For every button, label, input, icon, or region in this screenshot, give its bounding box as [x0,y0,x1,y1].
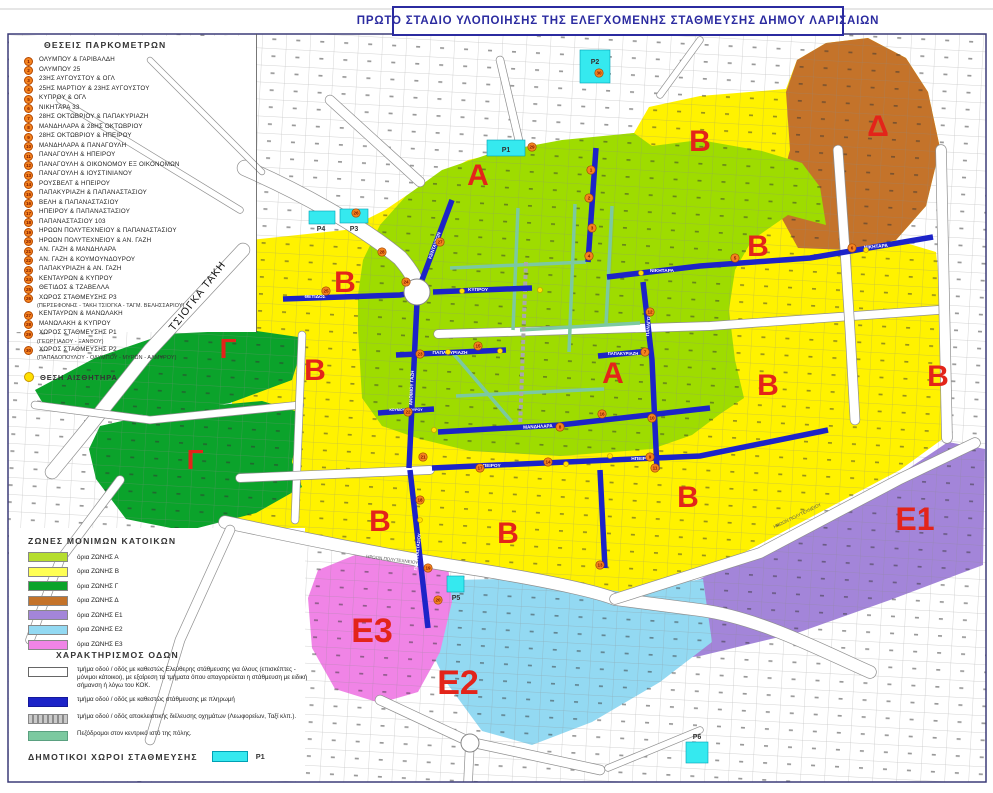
legend-meter-item: 30 ΧΩΡΟΣ ΣΤΑΘΜΕΥΣΗΣ Ρ2 [24,346,254,356]
parking-meter-number: 5 [734,256,737,261]
parking-meter-number: 2 [588,196,591,201]
legend-meter-item: 12 ΠΑΝΑΓΟΥΛΗ & ΟΙΚΟΝΟΜΟΥ ΕΞ ΟΙΚΟΝΟΜΩΝ [24,161,254,171]
parking-area-label: P1 [502,147,511,154]
meter-item-label: ΚΕΝΤΑΥΡΩΝ & ΚΥΠΡΟΥ [39,275,113,283]
map-sheet: P1P2P3P4P5P6ΘΕΤΙΔΟΣΚΥΠΡΟΥΚΕΝΤΑΥΡΩΝΑΝΘΙΜΟ… [0,0,993,793]
map-title-box: ΠΡΩΤΟ ΣΤΑΔΙΟ ΥΛΟΠΟΙΗΣΗΣ ΤΗΣ ΕΛΕΓΧΟΜΕΝΗΣ … [392,6,844,36]
meter-number-icon: 28 [24,320,33,329]
parking-meter-number: 18 [417,498,423,503]
legend-meter-item: 16 ΒΕΛΗ & ΠΑΠΑΝΑΣΤΑΣΙΟΥ [24,199,254,209]
meter-number-icon: 7 [24,114,33,123]
street-name-label: ΘΕΤΙΔΟΣ [304,294,325,300]
legend-meter-item: 26 ΧΩΡΟΣ ΣΤΑΘΜΕΥΣΗΣ Ρ3 [24,294,254,304]
meter-item-label: ΜΑΝΔΗΛΑΡΑ & ΠΑΝΑΓΟΥΛΗ [39,142,126,150]
road-legend-item: τμήμα οδού / οδός με καθεστώς Ελεύθερης … [28,666,328,690]
sensor-marker [432,428,437,433]
zone-legend-label: όρια ΖΩΝΗΣ Ε2 [77,626,123,633]
meter-number-icon: 11 [24,152,33,161]
zone-legend-label: όρια ΖΩΝΗΣ Δ [77,597,119,604]
parking-meter-number: 27 [437,240,443,245]
meter-number-icon: 18 [24,218,33,227]
legend-meter-item: 28 ΜΑΝΩΛΑΚΗ & ΚΥΠΡΟΥ [24,320,254,330]
parking-meter-number: 25 [323,289,329,294]
meter-item-label: ΧΩΡΟΣ ΣΤΑΘΜΕΥΣΗΣ Ρ1 [39,329,117,337]
legend-meter-item: 5 ΚΥΠΡΟΥ & ΟΓΛ [24,94,254,104]
legend-meter-item: 7 28ΗΣ ΟΚΤΩΒΡΙΟΥ & ΠΑΠΑΚΥΡΙΑΖΗ [24,113,254,123]
meter-item-label: ΗΡΩΩΝ ΠΟΛΥΤΕΧΝΕΙΟΥ & ΑΝ. ΓΑΖΗ [39,237,151,245]
zone-legend-item: όρια ΖΩΝΗΣ Ε3 [28,640,278,650]
meter-number-icon: 10 [24,142,33,151]
meter-item-label: ΧΩΡΟΣ ΣΤΑΘΜΕΥΣΗΣ Ρ3 [39,294,117,302]
meter-item-label: ΟΛΥΜΠΟΥ & ΓΑΡΙΒΑΛΔΗ [39,56,115,64]
legend-meter-item: 21 ΑΝ. ΓΑΖΗ & ΜΑΝΔΗΛΑΡΑ [24,246,254,256]
parking-area-P5 [447,576,464,592]
parking-meter-number: 19 [425,566,431,571]
sensor-marker [608,454,613,459]
meter-item-sublabel: (ΠΑΠΑΔΟΠΟΥΛΟΥ - ΟΛΥΜΠΟΥ - ΜΥΡΩΝ - ΑΛΜΥΡΟ… [37,355,254,362]
zone-color-swatch [28,625,68,635]
parking-meter-number: 20 [435,598,441,603]
zone-legend-item: όρια ΖΩΝΗΣ Γ [28,581,278,591]
parking-meters-legend-list: 1 ΟΛΥΜΠΟΥ & ΓΑΡΙΒΑΛΔΗ 2 ΟΛΥΜΠΟΥ 25 3 [16,56,254,362]
legend-meter-item: 3 23ΗΣ ΑΥΓΟΥΣΤΟΥ & ΟΓΛ [24,75,254,85]
zone-letter-label: Α [602,357,624,390]
zone-letter-label: Β [757,369,779,402]
sensor-marker [418,518,423,523]
meter-item-label: ΠΑΝΑΓΟΥΛΗ & ΗΠΕΙΡΟΥ [39,151,116,159]
meter-item-label: ΑΝ. ΓΑΖΗ & ΚΟΥΜΟΥΝΔΟΥΡΟΥ [39,256,135,264]
zone-legend-label: όρια ΖΩΝΗΣ Ε1 [77,612,123,619]
sensor-marker [538,288,543,293]
zone-letter-label: Β [677,481,699,514]
parking-meter-number: 21 [420,455,426,460]
sensor-legend-row: ΘΕΣΗ ΑΙΣΘΗΤΗΡΑ [24,372,254,382]
meter-item-label: ΜΑΝΩΛΑΚΗ & ΚΥΠΡΟΥ [39,320,111,328]
meter-number-icon: 23 [24,266,33,275]
parking-area-P2 [580,50,610,83]
zones-legend: ΖΩΝΕΣ ΜΟΝΙΜΩΝ ΚΑΤΟΙΚΩΝ όρια ΖΩΝΗΣ Α όρια… [28,536,278,654]
meter-number-icon: 22 [24,256,33,265]
parking-meters-legend-header: ΘΕΣΕΙΣ ΠΑΡΚΟΜΕΤΡΩΝ [44,40,254,50]
zone-legend-item: όρια ΖΩΝΗΣ Β [28,567,278,577]
legend-meter-item: 19 ΗΡΩΩΝ ΠΟΛΥΤΕΧΝΕΙΟΥ & ΠΑΠΑΝΑΣΤΑΣΙΟΥ [24,227,254,237]
zone-color-swatch [28,552,68,562]
legend-meter-item: 8 ΜΑΝΔΗΛΑΡΑ & 28ΗΣ ΟΚΤΩΒΡΙΟΥ [24,123,254,133]
meter-number-icon: 27 [24,311,33,320]
parking-meter-number: 28 [379,250,385,255]
meter-number-icon: 17 [24,209,33,218]
zone-color-swatch [28,610,68,620]
parking-meter-number: 7 [644,350,647,355]
road-type-swatch [28,667,68,677]
road-legend-label: τμήμα οδού / οδός αποκλειστικής διέλευση… [77,713,296,721]
meter-number-icon: 6 [24,104,33,113]
zone-letter-label: Β [689,125,711,158]
legend-meter-item: 29 ΧΩΡΟΣ ΣΤΑΘΜΕΥΣΗΣ Ρ1 [24,329,254,339]
parking-meter-number: 10 [649,416,655,421]
meter-item-label: 28ΗΣ ΟΚΤΩΒΡΙΟΥ & ΗΠΕΙΡΟΥ [39,132,132,140]
legend-meter-item: 20 ΗΡΩΩΝ ΠΟΛΥΤΕΧΝΕΙΟΥ & ΑΝ. ΓΑΖΗ [24,237,254,247]
road-types-legend-list: τμήμα οδού / οδός με καθεστώς Ελεύθερης … [28,666,328,741]
parking-meter-number: 17 [477,466,483,471]
meter-item-sublabel: (ΓΕΩΡΓΙΑΔΟΥ - ΞΑΝΘΟΥ) [37,339,254,346]
road-legend-item: τμήμα οδού / οδός αποκλειστικής διέλευση… [28,713,328,724]
roundabout [461,734,479,752]
meter-item-label: ΧΩΡΟΣ ΣΤΑΘΜΕΥΣΗΣ Ρ2 [39,346,117,354]
sensor-legend-label: ΘΕΣΗ ΑΙΣΘΗΤΗΡΑ [40,373,118,382]
zone-letter-label: Δ [867,110,889,143]
zone-letter-label: Β [497,517,519,550]
zones-legend-list: όρια ΖΩΝΗΣ Α όρια ΖΩΝΗΣ Β όρια ΖΩΝΗΣ Γ ό… [28,552,278,650]
legend-meter-item: 9 28ΗΣ ΟΚΤΩΒΡΙΟΥ & ΗΠΕΙΡΟΥ [24,132,254,142]
meter-number-icon: 26 [24,294,33,303]
zone-legend-label: όρια ΖΩΝΗΣ Γ [77,583,118,590]
road-types-legend-header: ΧΑΡΑΚΤΗΡΙΣΜΟΣ ΟΔΩΝ [56,650,328,660]
meter-item-label: ΚΕΝΤΑΥΡΩΝ & ΜΑΝΩΛΑΚΗ [39,310,123,318]
meter-item-label: ΡΟΥΣΒΕΛΤ & ΗΠΕΙΡΟΥ [39,180,110,188]
zone-letter-label: Ε3 [351,612,393,650]
meter-item-label: ΚΥΠΡΟΥ & ΟΓΛ [39,94,86,102]
zone-letter-label: Β [927,360,949,393]
meter-item-label: ΘΕΤΙΔΟΣ & ΤΖΑΒΕΛΛΑ [39,284,109,292]
map-title: ΠΡΩΤΟ ΣΤΑΔΙΟ ΥΛΟΠΟΙΗΣΗΣ ΤΗΣ ΕΛΕΓΧΟΜΕΝΗΣ … [357,15,879,27]
zone-letter-label: Γ [187,444,204,475]
parking-meter-number: 4 [588,254,591,259]
zone-color-swatch [28,581,68,591]
meter-number-icon: 5 [24,95,33,104]
street-name-label: ΠΑΠΑΚΥΡΙΑΖΗ [608,351,638,356]
sensor-marker [864,248,869,253]
parking-meter-number: 8 [559,425,562,430]
meter-number-icon: 9 [24,133,33,142]
legend-meter-item: 17 ΗΠΕΙΡΟΥ & ΠΑΠΑΝΑΣΤΑΣΙΟΥ [24,208,254,218]
road-type-swatch [28,731,68,741]
zone-letter-label: Β [334,266,356,299]
road-legend-label: τμήμα οδού / οδός με καθεστώς στάθμευσης… [77,696,235,704]
zone-letter-label: Ε1 [895,501,934,537]
zone-color-swatch [28,596,68,606]
parking-meters-legend: ΘΕΣΕΙΣ ΠΑΡΚΟΜΕΤΡΩΝ 1 ΟΛΥΜΠΟΥ & ΓΑΡΙΒΑΛΔΗ… [16,40,254,382]
sensor-marker [564,462,569,467]
parking-meter-number: 26 [353,211,359,216]
meter-number-icon: 14 [24,180,33,189]
meter-number-icon: 3 [24,76,33,85]
zone-legend-label: όρια ΖΩΝΗΣ Α [77,554,119,561]
road-legend-label: τμήμα οδού / οδός με καθεστώς Ελεύθερης … [77,666,312,690]
parking-meter-number: 9 [649,455,652,460]
road-legend-label: Πεζόδρομοι στον κεντρικό ιστό της πόλης. [77,730,192,738]
sensor-marker [460,289,465,294]
sensor-marker [498,349,503,354]
meter-item-label: ΜΑΝΔΗΛΑΡΑ & 28ΗΣ ΟΚΤΩΒΡΙΟΥ [39,123,143,131]
parking-meter-number: 24 [403,280,409,285]
zone-legend-label: όρια ΖΩΝΗΣ Β [77,568,119,575]
meter-number-icon: 16 [24,199,33,208]
zones-legend-header: ΖΩΝΕΣ ΜΟΝΙΜΩΝ ΚΑΤΟΙΚΩΝ [28,536,278,546]
sensor-marker [446,350,451,355]
zone-letter-label: Ε2 [437,664,479,702]
parking-area-P6 [686,742,708,763]
parking-meter-number: 16 [599,412,605,417]
parking-meter-number: 13 [597,563,603,568]
municipal-parking-legend: ΔΗΜΟΤΙΚΟΙ ΧΩΡΟΙ ΣΤΑΘΜΕΥΣΗΣ P1 [28,751,328,762]
legend-meter-item: 13 ΠΑΝΑΓΟΥΛΗ & ΙΟΥΣΤΙΝΙΑΝΟΥ [24,170,254,180]
meter-item-label: 25ΗΣ ΜΑΡΤΙΟΥ & 23ΗΣ ΑΥΓΟΥΣΤΟΥ [39,85,150,93]
road-types-legend: ΧΑΡΑΚΤΗΡΙΣΜΟΣ ΟΔΩΝ τμήμα οδού / οδός με … [28,650,328,762]
legend-meter-item: 10 ΜΑΝΔΗΛΑΡΑ & ΠΑΝΑΓΟΥΛΗ [24,142,254,152]
parking-meter-number: 30 [596,71,602,76]
legend-meter-item: 23 ΠΑΠΑΚΥΡΙΑΖΗ & ΑΝ. ΓΑΖΗ [24,265,254,275]
meter-number-icon: 1 [24,57,33,66]
parking-meter-number: 23 [417,352,423,357]
zone-color-swatch [28,640,68,650]
parking-area-label: P3 [350,226,359,233]
parking-meter-number: 14 [545,460,551,465]
zone-letter-label: Α [467,159,489,192]
meter-item-label: ΗΡΩΩΝ ΠΟΛΥΤΕΧΝΕΙΟΥ & ΠΑΠΑΝΑΣΤΑΣΙΟΥ [39,227,177,235]
municipal-parking-label: P1 [256,752,265,761]
road-legend-item: Πεζόδρομοι στον κεντρικό ιστό της πόλης. [28,730,328,741]
zone-legend-label: όρια ΖΩΝΗΣ Ε3 [77,641,123,648]
meter-item-label: ΗΠΕΙΡΟΥ & ΠΑΠΑΝΑΣΤΑΣΙΟΥ [39,208,130,216]
parking-area-label: P6 [693,734,702,741]
meter-item-sublabel: (ΠΕΡΣΕΦΟΝΗΣ - ΤΑΚΗ ΤΣΙΟΓΚΑ - ΤΑΓΜ. ΒΕΛΗΣ… [37,303,254,310]
parking-area-label: P4 [317,226,326,233]
meter-number-icon: 29 [24,330,33,339]
zone-color-swatch [28,567,68,577]
meter-number-icon: 8 [24,123,33,132]
meter-number-icon: 21 [24,247,33,256]
legend-meter-item: 18 ΠΑΠΑΝΑΣΤΑΣΙΟΥ 103 [24,218,254,228]
meter-item-label: ΠΑΠΑΚΥΡΙΑΖΗ & ΑΝ. ΓΑΖΗ [39,265,122,273]
meter-item-label: ΝΙΚΗΤΑΡΑ 33 [39,104,79,112]
meter-number-icon: 19 [24,228,33,237]
meter-number-icon: 25 [24,285,33,294]
zone-legend-item: όρια ΖΩΝΗΣ Ε2 [28,625,278,635]
sensor-dot-icon [24,372,34,382]
municipal-parking-header: ΔΗΜΟΤΙΚΟΙ ΧΩΡΟΙ ΣΤΑΘΜΕΥΣΗΣ [28,752,198,762]
road-type-swatch [28,697,68,707]
meter-number-icon: 12 [24,161,33,170]
parking-meter-number: 29 [529,145,535,150]
zone-letter-label: Β [369,505,391,538]
parking-meter-number: 3 [591,226,594,231]
parking-area-label: P5 [452,595,461,602]
legend-meter-item: 24 ΚΕΝΤΑΥΡΩΝ & ΚΥΠΡΟΥ [24,275,254,285]
legend-meter-item: 25 ΘΕΤΙΔΟΣ & ΤΖΑΒΕΛΛΑ [24,284,254,294]
meter-item-label: ΑΝ. ΓΑΖΗ & ΜΑΝΔΗΛΑΡΑ [39,246,116,254]
legend-meter-item: 4 25ΗΣ ΜΑΡΤΙΟΥ & 23ΗΣ ΑΥΓΟΥΣΤΟΥ [24,85,254,95]
legend-meter-item: 11 ΠΑΝΑΓΟΥΛΗ & ΗΠΕΙΡΟΥ [24,151,254,161]
zone-legend-item: όρια ΖΩΝΗΣ Ε1 [28,610,278,620]
legend-meter-item: 15 ΠΑΠΑΚΥΡΙΑΖΗ & ΠΑΠΑΝΑΣΤΑΣΙΟΥ [24,189,254,199]
meter-number-icon: 24 [24,275,33,284]
zone-legend-item: όρια ΖΩΝΗΣ Δ [28,596,278,606]
zone-letter-label: Β [747,230,769,263]
meter-item-label: ΟΛΥΜΠΟΥ 25 [39,66,80,74]
road-type-swatch [28,714,68,724]
meter-item-label: 23ΗΣ ΑΥΓΟΥΣΤΟΥ & ΟΓΛ [39,75,115,83]
legend-meter-item: 6 ΝΙΚΗΤΑΡΑ 33 [24,104,254,114]
legend-meter-item: 2 ΟΛΥΜΠΟΥ 25 [24,66,254,76]
legend-meter-item: 1 ΟΛΥΜΠΟΥ & ΓΑΡΙΒΑΛΔΗ [24,56,254,66]
parking-meter-number: 22 [405,410,411,415]
meter-item-label: 28ΗΣ ΟΚΤΩΒΡΙΟΥ & ΠΑΠΑΚΥΡΙΑΖΗ [39,113,149,121]
meter-item-label: ΠΑΠΑΝΑΣΤΑΣΙΟΥ 103 [39,218,106,226]
parking-meter-number: 15 [475,344,481,349]
meter-number-icon: 13 [24,171,33,180]
legend-meter-item: 22 ΑΝ. ΓΑΖΗ & ΚΟΥΜΟΥΝΔΟΥΡΟΥ [24,256,254,266]
parking-area-P4 [309,211,335,224]
parking-meter-number: 11 [653,466,658,471]
meter-item-label: ΠΑΠΑΚΥΡΙΑΖΗ & ΠΑΠΑΝΑΣΤΑΣΙΟΥ [39,189,147,197]
meter-number-icon: 15 [24,190,33,199]
parking-meter-number: 1 [590,168,593,173]
free-parking-road [941,150,947,438]
meter-item-label: ΠΑΝΑΓΟΥΛΗ & ΙΟΥΣΤΙΝΙΑΝΟΥ [39,170,132,178]
meter-number-icon: 4 [24,85,33,94]
sensor-marker [639,271,644,276]
meter-number-icon: 30 [24,346,33,355]
meter-item-label: ΠΑΝΑΓΟΥΛΗ & ΟΙΚΟΝΟΜΟΥ ΕΞ ΟΙΚΟΝΟΜΩΝ [39,161,180,169]
street-name-label: ΚΥΠΡΟΥ [468,287,489,293]
meter-item-label: ΒΕΛΗ & ΠΑΠΑΝΑΣΤΑΣΙΟΥ [39,199,119,207]
zone-letter-label: Β [304,354,326,387]
parking-meter-number: 6 [851,246,854,251]
meter-number-icon: 2 [24,66,33,75]
legend-meter-item: 27 ΚΕΝΤΑΥΡΩΝ & ΜΑΝΩΛΑΚΗ [24,310,254,320]
meter-number-icon: 20 [24,237,33,246]
municipal-parking-swatch [212,751,248,762]
legend-meter-item: 14 ΡΟΥΣΒΕΛΤ & ΗΠΕΙΡΟΥ [24,180,254,190]
road-legend-item: τμήμα οδού / οδός με καθεστώς στάθμευσης… [28,696,328,707]
street-name-label: ΝΙΚΗΤΑΡΑ [650,268,675,274]
parking-area-label: P2 [591,59,600,66]
parking-meter-number: 12 [647,310,653,315]
zone-legend-item: όρια ΖΩΝΗΣ Α [28,552,278,562]
